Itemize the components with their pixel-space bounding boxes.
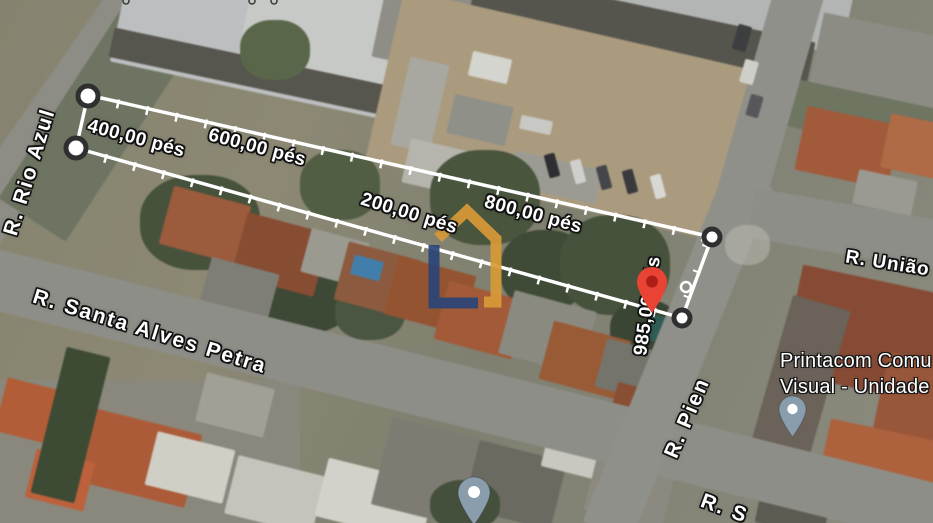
pin-inner-dot (646, 276, 658, 288)
tree-canopy (240, 20, 310, 80)
pin-body (458, 477, 490, 523)
pin-inner-dot (468, 486, 480, 498)
logo-blue-stroke (434, 245, 478, 303)
poi-label-printacom[interactable]: Printacom Comu Visual - Unidade (780, 348, 932, 400)
pin-body (637, 267, 667, 313)
place-pin-icon[interactable] (779, 396, 806, 438)
poi-label-line1: Printacom Comu (780, 348, 932, 374)
tree-canopy (725, 225, 770, 265)
place-pin-icon[interactable] (458, 477, 490, 523)
pin-inner-dot (787, 404, 797, 414)
pin-body (779, 396, 806, 437)
satellite-map-canvas[interactable]: 400,00 pés 600,00 pés 200,00 pés 800,00 … (0, 0, 933, 523)
house-roof-white (224, 455, 326, 523)
red-location-pin-icon[interactable] (637, 267, 667, 313)
